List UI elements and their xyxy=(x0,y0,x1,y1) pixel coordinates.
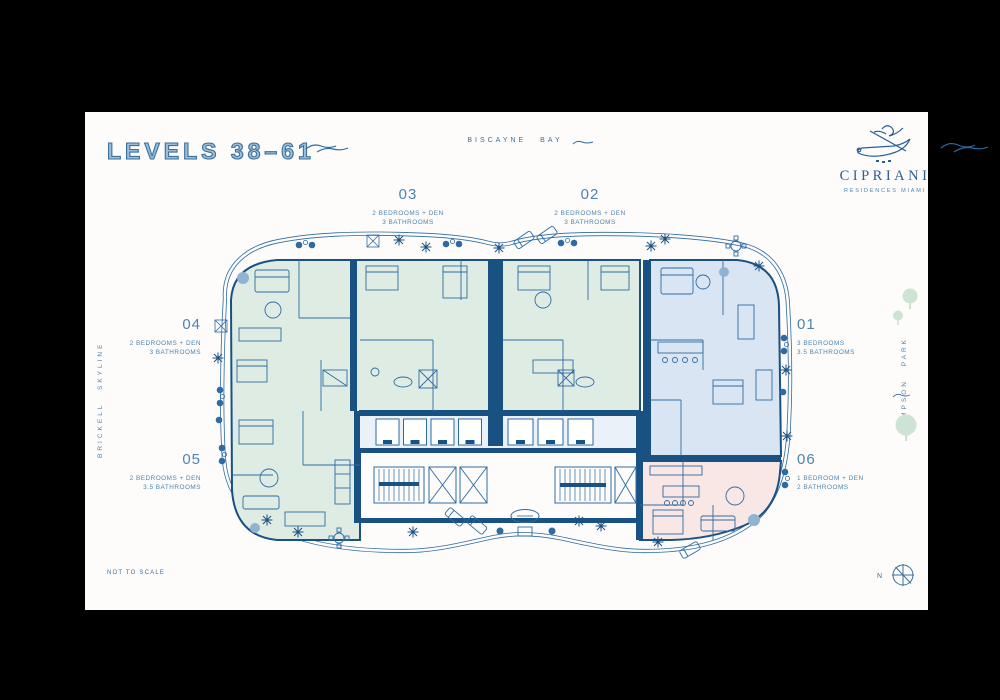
unit-label-04: 04 2 BEDROOMS + DEN 3 BATHROOMS xyxy=(91,314,201,357)
unit-region-blue xyxy=(650,260,781,456)
brochure-page: LEVELS 38–61 BISCAYNE BAY xyxy=(0,0,1000,700)
floorplate-sheet: LEVELS 38–61 BISCAYNE BAY xyxy=(85,112,928,610)
brand-tagline: RESIDENCES MIAMI xyxy=(829,188,941,194)
unit-bedrooms: 2 BEDROOMS + DEN xyxy=(343,209,473,218)
floor-plan xyxy=(203,220,803,568)
gondola-icon xyxy=(850,120,920,166)
tree-icon xyxy=(893,414,919,442)
stair-core xyxy=(374,467,636,503)
unit-bathrooms: 3.5 BATHROOMS xyxy=(91,483,201,492)
tree-icon xyxy=(891,310,905,327)
unit-bedrooms: 2 BEDROOMS + DEN xyxy=(525,209,655,218)
unit-number: 06 xyxy=(797,449,907,471)
wave-icon xyxy=(571,138,597,148)
unit-bathrooms: 3 BATHROOMS xyxy=(91,348,201,357)
unit-label-05: 05 2 BEDROOMS + DEN 3.5 BATHROOMS xyxy=(91,449,201,492)
wave-icon xyxy=(303,140,351,156)
unit-region-pink xyxy=(640,461,781,540)
unit-bedrooms: 2 BEDROOMS + DEN xyxy=(91,339,201,348)
unit-region-green xyxy=(231,260,640,540)
page-title: LEVELS 38–61 xyxy=(107,138,315,165)
context-label-simpson-park: SIMPSON PARK xyxy=(901,310,908,430)
unit-number: 05 xyxy=(91,449,201,471)
scale-note: NOT TO SCALE xyxy=(107,570,165,576)
unit-bathrooms: 3.5 BATHROOMS xyxy=(797,348,907,357)
unit-bedrooms: 3 BEDROOMS xyxy=(797,339,907,348)
unit-number: 03 xyxy=(343,184,473,206)
unit-label-06: 06 1 BEDROOM + DEN 2 BATHROOMS xyxy=(797,449,907,492)
compass-north-label: N xyxy=(877,573,883,580)
wave-icon xyxy=(938,138,990,156)
unit-bathrooms: 2 BATHROOMS xyxy=(797,483,907,492)
compass-rose-icon xyxy=(887,560,919,592)
unit-number: 04 xyxy=(91,314,201,336)
unit-bedrooms: 2 BEDROOMS + DEN xyxy=(91,474,201,483)
brand-logo: CIPRIANI RESIDENCES MIAMI xyxy=(829,120,941,194)
tree-icon xyxy=(900,288,920,312)
brand-name: CIPRIANI xyxy=(829,168,941,185)
compass: N xyxy=(877,560,919,592)
context-label-brickell-skyline: BRICKELL SKYLINE xyxy=(97,308,104,458)
wave-icon xyxy=(891,392,913,401)
unit-bedrooms: 1 BEDROOM + DEN xyxy=(797,474,907,483)
unit-number: 02 xyxy=(525,184,655,206)
